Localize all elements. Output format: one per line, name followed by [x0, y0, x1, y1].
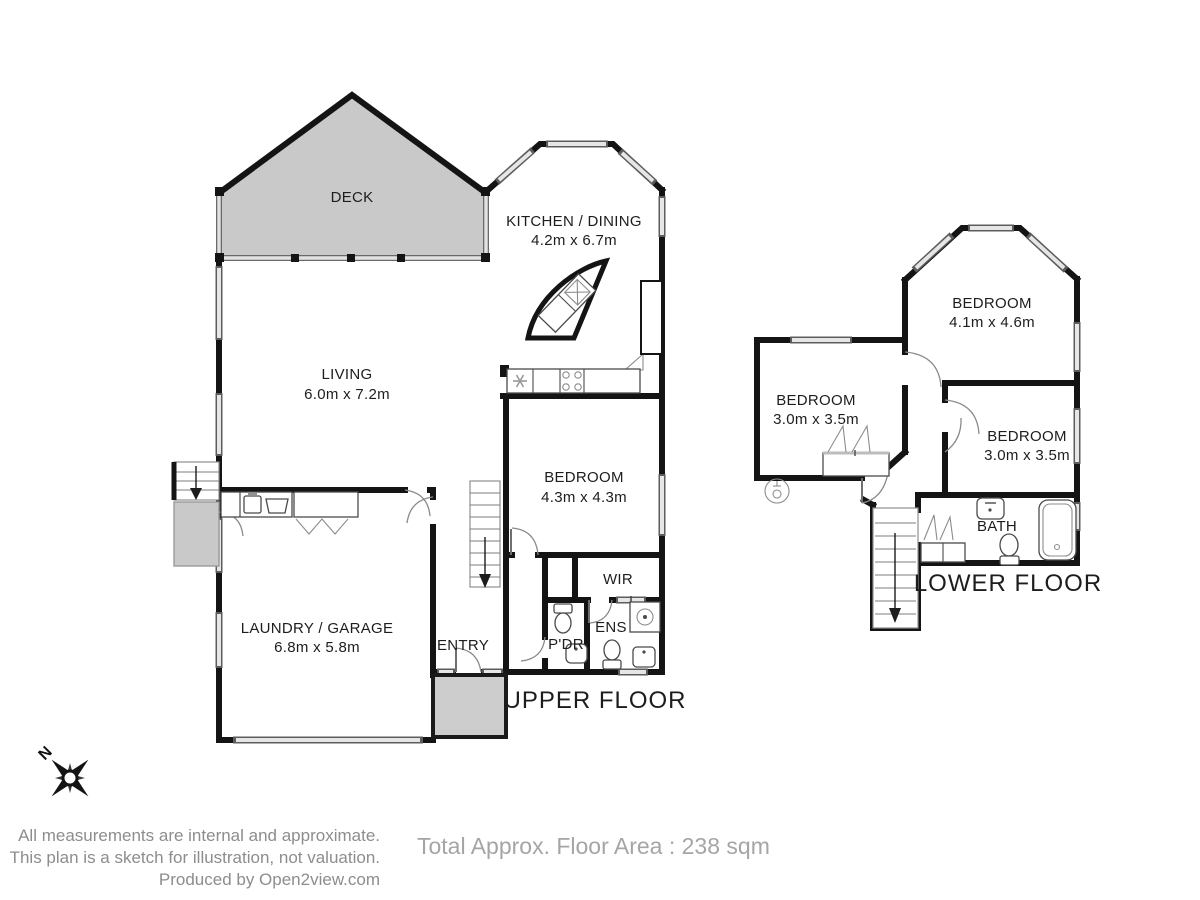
- room-label-bedroom-upper: BEDROOM: [544, 469, 624, 486]
- room-dims-living: 6.0m x 7.2m: [304, 386, 390, 403]
- disclaimer-line-2: This plan is a sketch for illustration, …: [10, 848, 380, 867]
- room-label-bedroom-main: BEDROOM: [952, 295, 1032, 312]
- room-label-living: LIVING: [322, 366, 373, 383]
- floor-plan-drawing: DECK KITCHEN / DINING 4.2m x 6.7m LIVING…: [0, 0, 1200, 900]
- room-label-kitchen: KITCHEN / DINING: [506, 213, 642, 230]
- room-dims-bedroom-left: 3.0m x 3.5m: [773, 411, 859, 428]
- exterior-stairs: [174, 462, 219, 500]
- compass-icon: N: [21, 729, 107, 815]
- kitchen-fixtures: [507, 261, 662, 393]
- pantry-cabinet: [641, 281, 662, 354]
- footer-text: All measurements are internal and approx…: [10, 826, 770, 889]
- room-label-entry: ENTRY: [437, 637, 489, 654]
- kitchen-island: [528, 261, 606, 338]
- room-dims-bedroom-main: 4.1m x 4.6m: [949, 314, 1035, 331]
- disclaimer-line-3: Produced by Open2view.com: [159, 870, 380, 889]
- disclaimer-line-1: All measurements are internal and approx…: [18, 826, 380, 845]
- room-label-bedroom-left: BEDROOM: [776, 392, 856, 409]
- room-dims-bedroom-upper: 4.3m x 4.3m: [541, 489, 627, 506]
- room-dims-laundry: 6.8m x 5.8m: [274, 639, 360, 656]
- upper-floor-plan: DECK KITCHEN / DINING 4.2m x 6.7m LIVING…: [174, 95, 687, 740]
- lower-windows: [790, 228, 1077, 531]
- room-label-bath: BATH: [977, 518, 1017, 535]
- entry-porch: [433, 675, 506, 737]
- light-symbol-icon: [765, 479, 789, 503]
- lower-stairs: [873, 508, 918, 628]
- room-label-wir: WIR: [603, 571, 633, 588]
- room-label-deck: DECK: [331, 189, 374, 206]
- room-label-ens: ENS: [595, 619, 627, 636]
- total-floor-area: Total Approx. Floor Area : 238 sqm: [417, 833, 770, 859]
- upper-floor-title: UPPER FLOOR: [503, 687, 686, 714]
- left-bedroom-robe: [823, 426, 889, 476]
- pdr-fixtures: [554, 604, 587, 663]
- room-label-pdr: P'DR: [548, 636, 584, 653]
- room-dims-kitchen: 4.2m x 6.7m: [531, 232, 617, 249]
- lower-floor-plan: BEDROOM 4.1m x 4.6m BEDROOM 3.0m x 3.5m …: [757, 228, 1102, 628]
- room-label-bedroom-right: BEDROOM: [987, 428, 1067, 445]
- interior-stairs: [470, 481, 500, 588]
- room-label-laundry: LAUNDRY / GARAGE: [241, 620, 394, 637]
- floor-plan-page: DECK KITCHEN / DINING 4.2m x 6.7m LIVING…: [0, 0, 1200, 900]
- deck-area: [215, 95, 490, 262]
- room-dims-bedroom-right: 3.0m x 3.5m: [984, 447, 1070, 464]
- lower-floor-title: LOWER FLOOR: [914, 570, 1102, 597]
- side-landing: [174, 502, 219, 566]
